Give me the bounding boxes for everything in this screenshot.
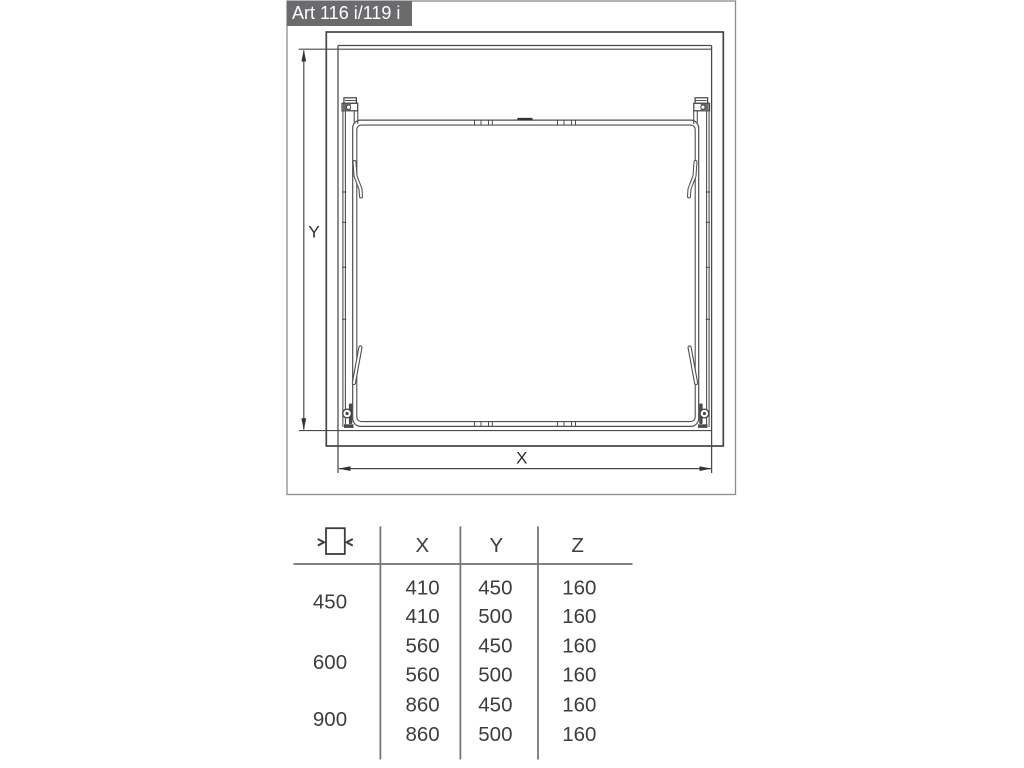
svg-text:Z: Z (571, 534, 584, 557)
svg-text:X: X (516, 448, 527, 467)
svg-text:410: 410 (405, 576, 439, 599)
svg-text:Y: Y (308, 223, 319, 242)
svg-text:450: 450 (478, 635, 512, 658)
svg-text:160: 160 (562, 663, 596, 686)
svg-text:500: 500 (478, 723, 512, 746)
svg-text:Art 116 i/119 i: Art 116 i/119 i (292, 3, 400, 23)
svg-text:860: 860 (405, 694, 439, 717)
svg-text:X: X (416, 534, 430, 557)
svg-text:450: 450 (478, 576, 512, 599)
svg-text:450: 450 (478, 694, 512, 717)
svg-text:500: 500 (478, 605, 512, 628)
svg-text:160: 160 (562, 605, 596, 628)
svg-text:160: 160 (562, 576, 596, 599)
svg-text:560: 560 (405, 663, 439, 686)
svg-text:Y: Y (489, 534, 503, 557)
svg-text:160: 160 (562, 694, 596, 717)
svg-text:900: 900 (313, 708, 347, 731)
svg-text:160: 160 (562, 635, 596, 658)
svg-text:160: 160 (562, 723, 596, 746)
svg-text:560: 560 (405, 635, 439, 658)
svg-text:860: 860 (405, 723, 439, 746)
svg-text:500: 500 (478, 663, 512, 686)
svg-text:600: 600 (313, 651, 347, 674)
svg-text:410: 410 (405, 605, 439, 628)
svg-text:450: 450 (313, 590, 347, 613)
